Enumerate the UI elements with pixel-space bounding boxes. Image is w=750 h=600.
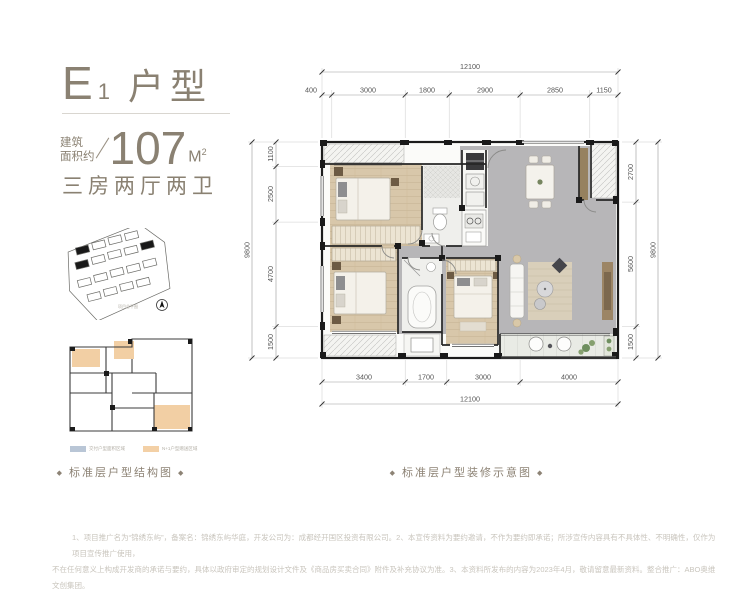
disclaimer-line1: 1、项目推广名为“锦绣东屿”，备案名：锦绣东屿华庭，开发公司为：成都经开国区投资…	[52, 530, 720, 562]
disclaimer-line2: 不在任何意义上构成开发商的承诺与要约，具体以政府审定的规划设计文件及《商品房买卖…	[52, 562, 720, 594]
svg-text:1500: 1500	[266, 334, 275, 350]
svg-text:1800: 1800	[419, 86, 435, 95]
structure-diagram	[62, 333, 202, 443]
title-divider	[62, 113, 230, 114]
svg-text:1150: 1150	[596, 86, 611, 95]
diamond-icon: ◆	[390, 470, 397, 477]
sofa	[510, 264, 524, 318]
wardrobe	[332, 248, 396, 261]
north-arrow-icon	[157, 300, 168, 311]
legend-label-delivered: 交付户型面积区域	[89, 446, 125, 452]
lounge-chair	[557, 337, 571, 351]
fridge	[466, 153, 484, 170]
svg-text:4700: 4700	[266, 266, 275, 282]
lounge-chair	[529, 337, 543, 351]
svg-text:1500: 1500	[626, 334, 635, 350]
structure-highlight-rooms	[72, 341, 190, 429]
svg-text:1700: 1700	[418, 373, 434, 382]
svg-text:2700: 2700	[626, 164, 635, 180]
toilet	[434, 214, 447, 230]
svg-text:2500: 2500	[266, 186, 275, 202]
legend-swatch-bonus	[143, 446, 159, 452]
svg-text:1100: 1100	[266, 146, 275, 161]
unit-title-type: 户型	[128, 58, 212, 110]
diamond-icon: ◆	[178, 470, 185, 477]
caption-structure: ◆标准层户型结构图◆	[26, 464, 216, 480]
legend-swatch-delivered	[70, 446, 86, 452]
area-label-top: 建筑	[60, 136, 95, 150]
wardrobe	[332, 226, 420, 244]
svg-text:2900: 2900	[477, 86, 493, 95]
svg-text:5600: 5600	[626, 256, 635, 272]
area-value: 107	[110, 128, 187, 168]
layout-description: 三房两厅两卫	[62, 170, 218, 200]
diamond-icon: ◆	[57, 470, 64, 477]
svg-text:3400: 3400	[356, 373, 372, 382]
dim-bottom-total: 12100	[460, 395, 480, 404]
dim-top-total: 12100	[460, 62, 480, 71]
caption-decorated-plan: ◆标准层户型装修示意图◆	[372, 464, 562, 480]
site-plan-map: 项目总平图	[58, 228, 192, 320]
svg-text:400: 400	[305, 86, 317, 95]
dim-right-total: 9800	[649, 242, 658, 258]
brochure-page: E 1 户型 建筑 面积约 107 M2 三房两厅两卫	[0, 0, 750, 600]
svg-text:2850: 2850	[547, 86, 563, 95]
area-block: 建筑 面积约 107 M2	[60, 128, 207, 168]
area-unit: M2	[188, 147, 206, 166]
sink	[427, 263, 436, 272]
sideboard	[579, 148, 588, 200]
unit-title-number: 1	[98, 79, 110, 105]
area-slash-mark	[95, 138, 109, 159]
floor-plan-drawing: 12100 400 3000 1800 2900 2850 1150 3400 …	[238, 50, 688, 422]
unit-title: E 1 户型	[62, 56, 212, 110]
site-plan-note: 项目总平图	[118, 303, 138, 309]
svg-text:3000: 3000	[475, 373, 491, 382]
stove	[465, 214, 483, 228]
svg-text:4000: 4000	[561, 373, 577, 382]
area-labels: 建筑 面积约	[60, 136, 95, 164]
structure-legend: 交付户型面积区域 N+1户型赠送区域	[70, 446, 197, 452]
unit-title-letter: E	[62, 56, 95, 110]
svg-text:3000: 3000	[360, 86, 376, 95]
legend-label-bonus: N+1户型赠送区域	[162, 446, 197, 452]
diamond-icon: ◆	[537, 470, 544, 477]
dim-left-total: 9800	[243, 242, 252, 258]
shower-area	[424, 166, 460, 198]
disclaimer: 1、项目推广名为“锦绣东屿”，备案名：锦绣东屿华庭，开发公司为：成都经开国区投资…	[52, 530, 720, 594]
area-label-bottom: 面积约	[60, 150, 95, 164]
